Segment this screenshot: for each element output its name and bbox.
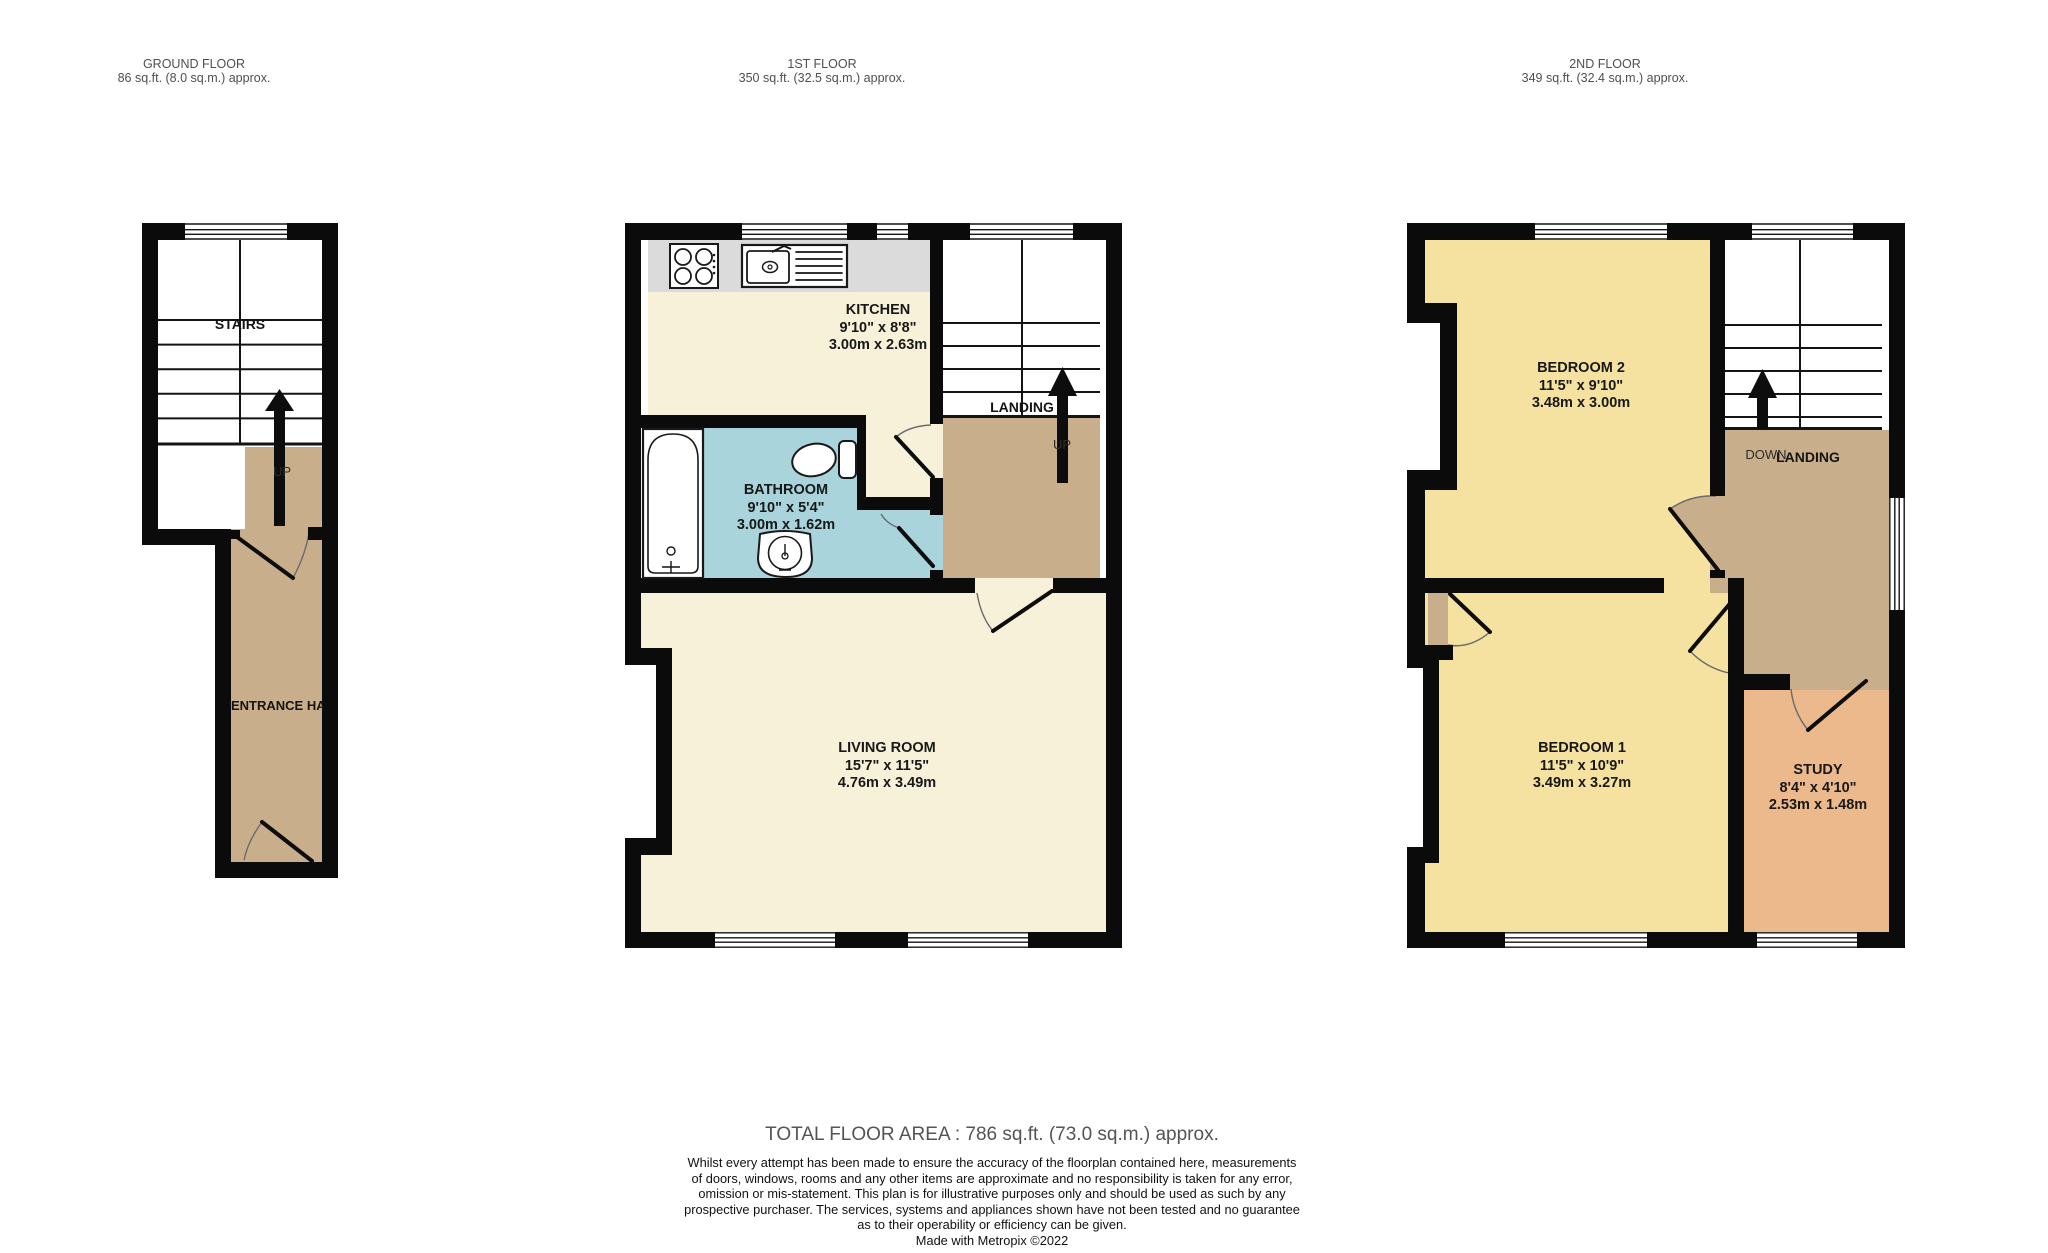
ground-floor-area: 86 sq.ft. (8.0 sq.m.) approx. <box>118 71 271 85</box>
bathroom-floor-2 <box>857 510 930 578</box>
window <box>742 223 847 240</box>
window <box>1752 223 1853 240</box>
entrance-hall-label: ENTRANCE HALL <box>231 698 322 715</box>
recess-notch <box>1407 323 1440 470</box>
window <box>970 223 1073 240</box>
up-label-ground: UP <box>273 464 291 479</box>
sink-icon <box>742 245 847 287</box>
basin-icon <box>758 531 812 577</box>
bathtub-icon <box>643 429 703 578</box>
window <box>908 932 1028 948</box>
second-floor-plan <box>1395 215 1915 960</box>
ground-floor-header: GROUND FLOOR 86 sq.ft. (8.0 sq.m.) appro… <box>118 57 271 85</box>
second-floor-area: 349 sq.ft. (32.4 sq.m.) approx. <box>1522 71 1689 85</box>
stairs-label: STAIRS <box>215 316 265 332</box>
window <box>715 932 835 948</box>
stairwell-floor <box>1725 240 1882 430</box>
bathroom-label: BATHROOM 9'10" x 5'4" 3.00m x 1.62m <box>737 482 835 535</box>
window <box>1889 498 1905 610</box>
up-label-first: UP <box>1053 437 1071 452</box>
cupboard-floor <box>1428 593 1448 645</box>
kitchen-label: KITCHEN 9'10" x 8'8" 3.00m x 2.63m <box>829 302 927 355</box>
recess-notch <box>625 665 656 838</box>
landing-label-second: LANDING <box>1776 449 1840 465</box>
window <box>1757 932 1857 948</box>
ground-window <box>185 223 287 240</box>
disclaimer: Whilst every attempt has been made to en… <box>684 1155 1300 1249</box>
lobby-floor <box>866 415 930 497</box>
stove-icon <box>670 244 718 288</box>
ground-floor-title: GROUND FLOOR <box>118 57 271 71</box>
bedroom2-label: BEDROOM 2 11'5" x 9'10" 3.48m x 3.00m <box>1532 360 1630 413</box>
entrance-hall-floor <box>231 529 322 862</box>
landing-floor-2 <box>1744 578 1889 690</box>
first-floor-header: 1ST FLOOR 350 sq.ft. (32.5 sq.m.) approx… <box>739 57 906 85</box>
study-label: STUDY 8'4" x 4'10" 2.53m x 1.48m <box>1769 762 1867 815</box>
window <box>1505 932 1647 948</box>
second-floor-header: 2ND FLOOR 349 sq.ft. (32.4 sq.m.) approx… <box>1522 57 1689 85</box>
landing-label-first: LANDING <box>990 399 1054 415</box>
floorplan-canvas: GROUND FLOOR 86 sq.ft. (8.0 sq.m.) appro… <box>0 0 2048 1253</box>
second-floor-title: 2ND FLOOR <box>1522 57 1689 71</box>
recess-notch <box>1407 668 1423 847</box>
metropix-credit: Made with Metropix ©2022 <box>684 1233 1300 1249</box>
first-floor-area: 350 sq.ft. (32.5 sq.m.) approx. <box>739 71 906 85</box>
bedroom1-label: BEDROOM 1 11'5" x 10'9" 3.49m x 3.27m <box>1533 740 1631 793</box>
landing-floor <box>943 418 1100 578</box>
first-floor-title: 1ST FLOOR <box>739 57 906 71</box>
living-room-label: LIVING ROOM 15'7" x 11'5" 4.76m x 3.49m <box>838 740 936 793</box>
total-floor-area: TOTAL FLOOR AREA : 786 sq.ft. (73.0 sq.m… <box>765 1124 1219 1146</box>
window <box>877 223 908 240</box>
window <box>1535 223 1667 240</box>
understair-void <box>158 447 245 529</box>
